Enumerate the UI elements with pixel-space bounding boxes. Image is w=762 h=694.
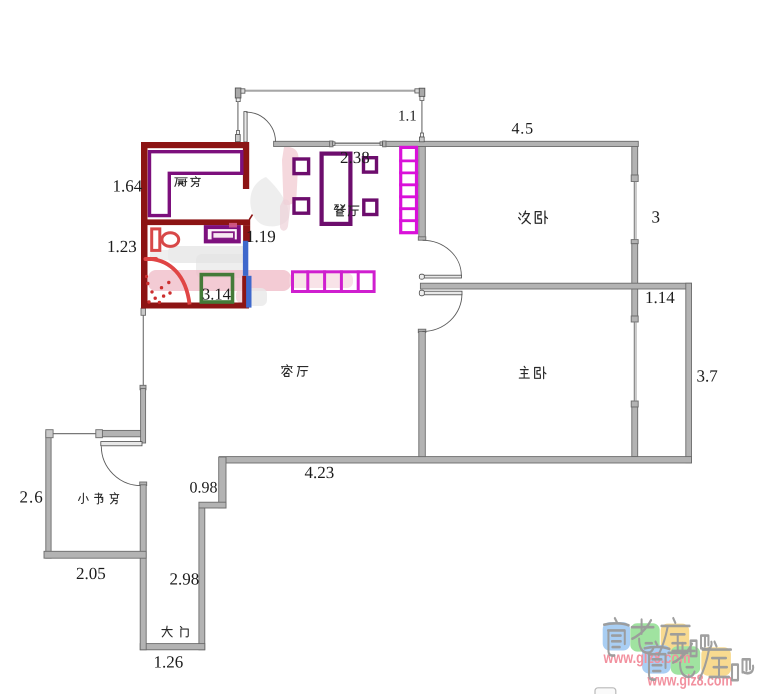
- svg-text:1.19: 1.19: [246, 227, 276, 246]
- svg-text:3.7: 3.7: [697, 367, 719, 386]
- svg-text:0.98: 0.98: [190, 480, 218, 497]
- svg-text:2.05: 2.05: [76, 564, 106, 583]
- svg-text:1.26: 1.26: [154, 653, 184, 672]
- svg-text:1.64: 1.64: [113, 177, 143, 196]
- svg-text:1.14: 1.14: [645, 288, 675, 307]
- svg-text:3: 3: [652, 208, 661, 227]
- svg-text:4.23: 4.23: [305, 463, 335, 482]
- svg-text:2.98: 2.98: [170, 570, 200, 589]
- svg-text:4.5: 4.5: [512, 121, 534, 138]
- svg-text:1.1: 1.1: [398, 109, 417, 125]
- svg-text:2.38: 2.38: [340, 148, 370, 167]
- svg-text:1.23: 1.23: [107, 237, 137, 256]
- svg-text:2.6: 2.6: [20, 488, 44, 507]
- svg-text:3.14: 3.14: [202, 285, 231, 304]
